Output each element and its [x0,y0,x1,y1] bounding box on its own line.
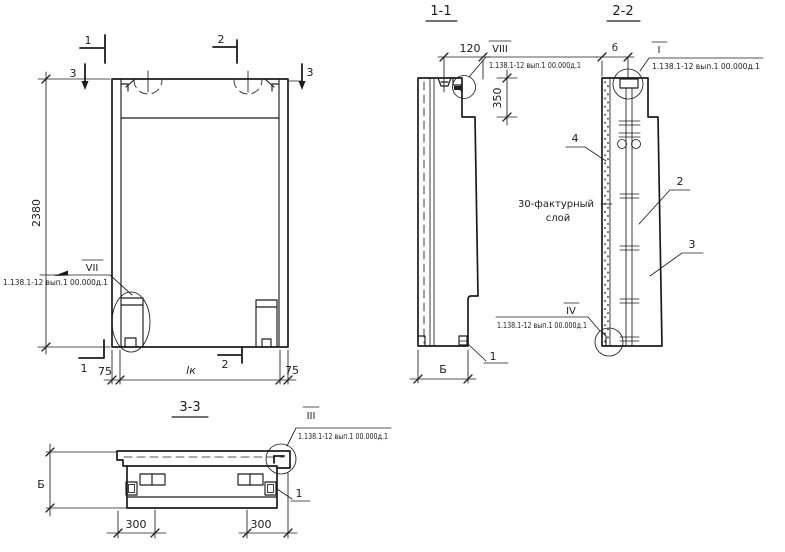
layer-note-line1: 30-фактурный [518,199,594,210]
dim-300-left: 300 [126,518,147,531]
i-label: I [658,45,661,56]
section-1-1-face-lines [430,79,434,346]
mark-1-bottom-label: 1 [81,362,88,375]
dim-b-33: Б [37,478,45,491]
section-3-3-title: 3-3 [179,400,200,415]
iii-ref-text: 1.138.1-12 вып.1 00.000д.1 [298,432,388,441]
corner-detail-left [121,79,135,91]
iv-ref-text: 1.138.1-12 вып.1 00.000д.1 [497,321,587,330]
mark-2-top-label: 2 [218,33,225,46]
item-4-leader [566,147,606,161]
layer-note-line2: слой [546,213,571,224]
dim-lk: lк [186,364,196,377]
section-1-1-title: 1-1 [430,4,451,19]
item-1-leader-11 [467,343,508,363]
end-connector-right [265,482,276,495]
dim-b-11: Б [439,363,447,376]
bottom-connector [459,336,467,345]
dim-b33-lines [46,444,127,516]
height-dim-lines [38,72,110,354]
dim-rib: б [612,43,618,54]
arrow-3-left [82,81,89,90]
iv-label: IV [566,306,576,317]
blueprint-sheet: 2380 1 2 3 3 1 2 75 lк 75 VII 1.138.1-12… [0,0,785,552]
item-2-leader [639,190,690,224]
mark-3-left-label: 3 [70,67,77,80]
body-outline [127,466,277,508]
detail-circle-iv [595,328,623,356]
item-1-label-11: 1 [490,350,497,363]
corner-detail-right [265,79,279,91]
loop-centerlines [148,71,248,92]
section-3-3: 3-3 Б 300 300 III 1.138.1-12 вып.1 00.00… [37,400,391,538]
section-1-1-bottom-notch [418,336,425,346]
bottom-box-right [256,300,277,347]
viii-label: VIII [492,44,508,55]
iii-label: III [307,411,316,422]
embed-plate-top [454,86,461,90]
panel-drawing: 2380 1 2 3 3 1 2 75 lк 75 VII 1.138.1-12… [0,0,785,552]
dim-75-left: 75 [98,365,112,378]
dim-75-right: 75 [285,364,299,377]
end-connector-left-inner [129,485,135,493]
end-connector-right-inner [268,485,274,493]
item-1-leader-33 [277,489,310,501]
clamp-circle-left [618,140,627,149]
item-2-label: 2 [677,175,684,188]
vii-label: VII [86,263,99,274]
item-1-label-33: 1 [296,487,303,500]
bottom-dim-lines [104,350,296,384]
detail-circle-vii [112,292,150,352]
arrow-3-right [299,81,306,90]
loop-recess [438,78,451,86]
item-4-label: 4 [572,132,579,145]
item-3-leader [650,253,703,276]
vii-ref-text: 1.138.1-12 вып.1 00.000д.1 [3,278,108,287]
dim-350: 350 [491,88,504,109]
mark-2-bottom-label: 2 [222,358,229,371]
viii-ref-text: 1.138.1-12 вып.1 00.000д.1 [489,61,581,70]
section-mark-1-bottom [79,340,104,358]
dim-120: 120 [460,42,481,55]
rod-ties [619,121,640,341]
dim-2380: 2380 [30,199,43,227]
mark-1-top-label: 1 [85,34,92,47]
dim-300-right: 300 [251,518,272,531]
tie-rods [626,88,632,346]
clamp-circle-right [632,140,641,149]
detail-circle-iii [266,444,296,474]
item-3-label: 3 [689,238,696,251]
elevation-dimensions: 2380 1 2 3 3 1 2 75 lк 75 VII 1.138.1-12… [3,33,314,384]
bolt-head [620,79,638,88]
mark-3-right-label: 3 [307,66,314,79]
section-2-2-title: 2-2 [612,4,633,19]
elevation-view [112,71,288,352]
bottom-box-left [121,298,143,347]
i-ref-text: 1.138.1-12 вып.1 00.000д.1 [652,62,760,71]
section-1-1-outline [418,78,478,346]
